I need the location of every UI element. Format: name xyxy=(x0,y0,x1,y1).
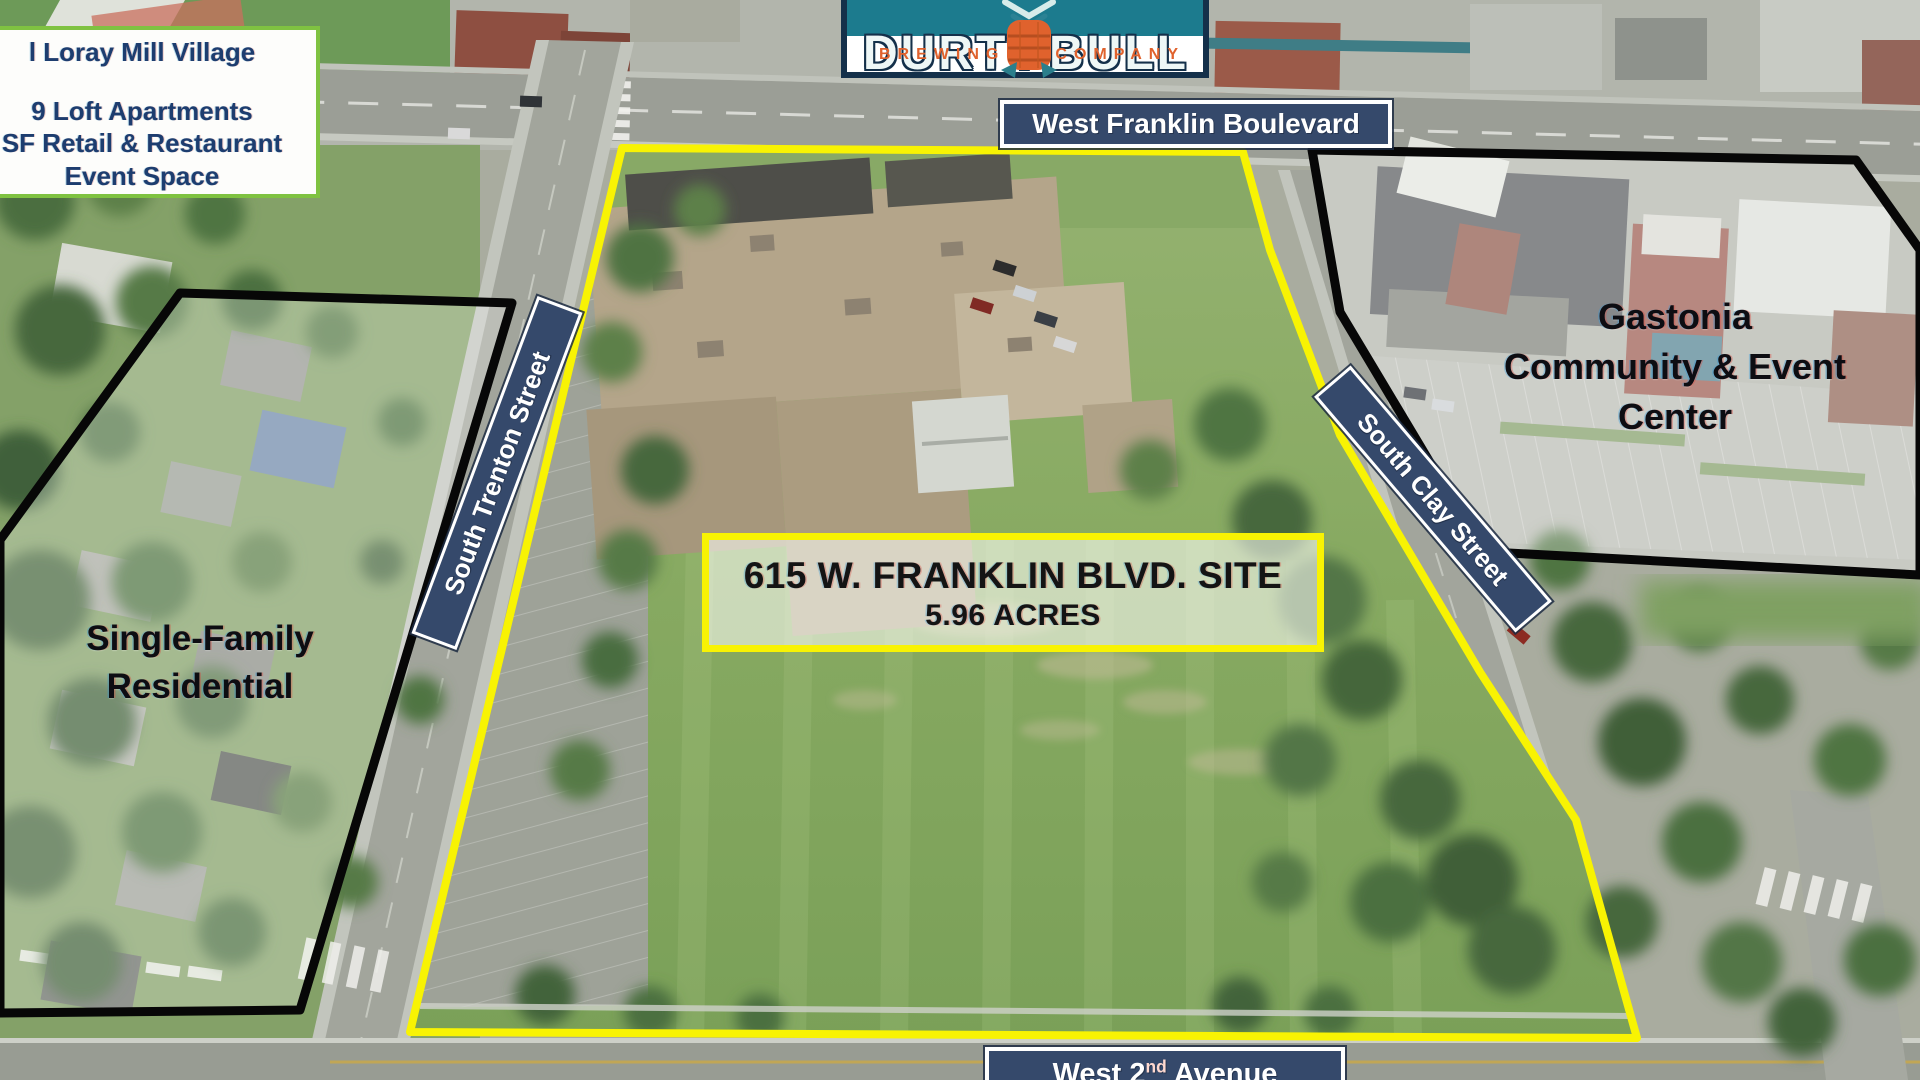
logo-sub-brewing: BREWING xyxy=(879,46,1005,64)
area-label-single-family: Single-Family Residential xyxy=(20,615,380,711)
info-card-line: l Loray Mill Village xyxy=(0,36,316,69)
street-label-west-2nd-avenue: West 2nd Avenue xyxy=(985,1047,1345,1080)
info-card: l Loray Mill Village 9 Loft Apartments S… xyxy=(0,26,320,198)
info-card-line: SF Retail & Restaurant xyxy=(0,127,316,160)
caption-line: Single-Family xyxy=(20,615,380,663)
ordinal-superscript: nd xyxy=(1146,1056,1167,1076)
site-title: 615 W. FRANKLIN BLVD. SITE xyxy=(744,553,1283,599)
caption-line: Gastonia xyxy=(1460,292,1890,342)
info-card-line: 9 Loft Apartments xyxy=(0,95,316,128)
caption-line: Center xyxy=(1460,392,1890,442)
street-label-west-franklin: West Franklin Boulevard xyxy=(1000,100,1392,148)
aerial-map: l Loray Mill Village 9 Loft Apartments S… xyxy=(0,0,1920,1080)
site-acreage: 5.96 ACRES xyxy=(925,599,1101,632)
area-label-gastonia: Gastonia Community & Event Center xyxy=(1460,292,1890,442)
street-label-text: West Franklin Boulevard xyxy=(1032,108,1360,140)
durty-bull-logo: DURTY BULL BREWING COMPANY xyxy=(841,0,1209,78)
caption-line: Community & Event xyxy=(1460,342,1890,392)
barrel-icon xyxy=(997,0,1061,82)
logo-sub-company: COMPANY xyxy=(1055,46,1185,64)
info-card-line: Event Space xyxy=(0,160,316,193)
caption-line: Residential xyxy=(20,663,380,711)
street-label-text: West 2nd Avenue xyxy=(1053,1058,1278,1080)
site-label: 615 W. FRANKLIN BLVD. SITE 5.96 ACRES xyxy=(702,533,1324,652)
